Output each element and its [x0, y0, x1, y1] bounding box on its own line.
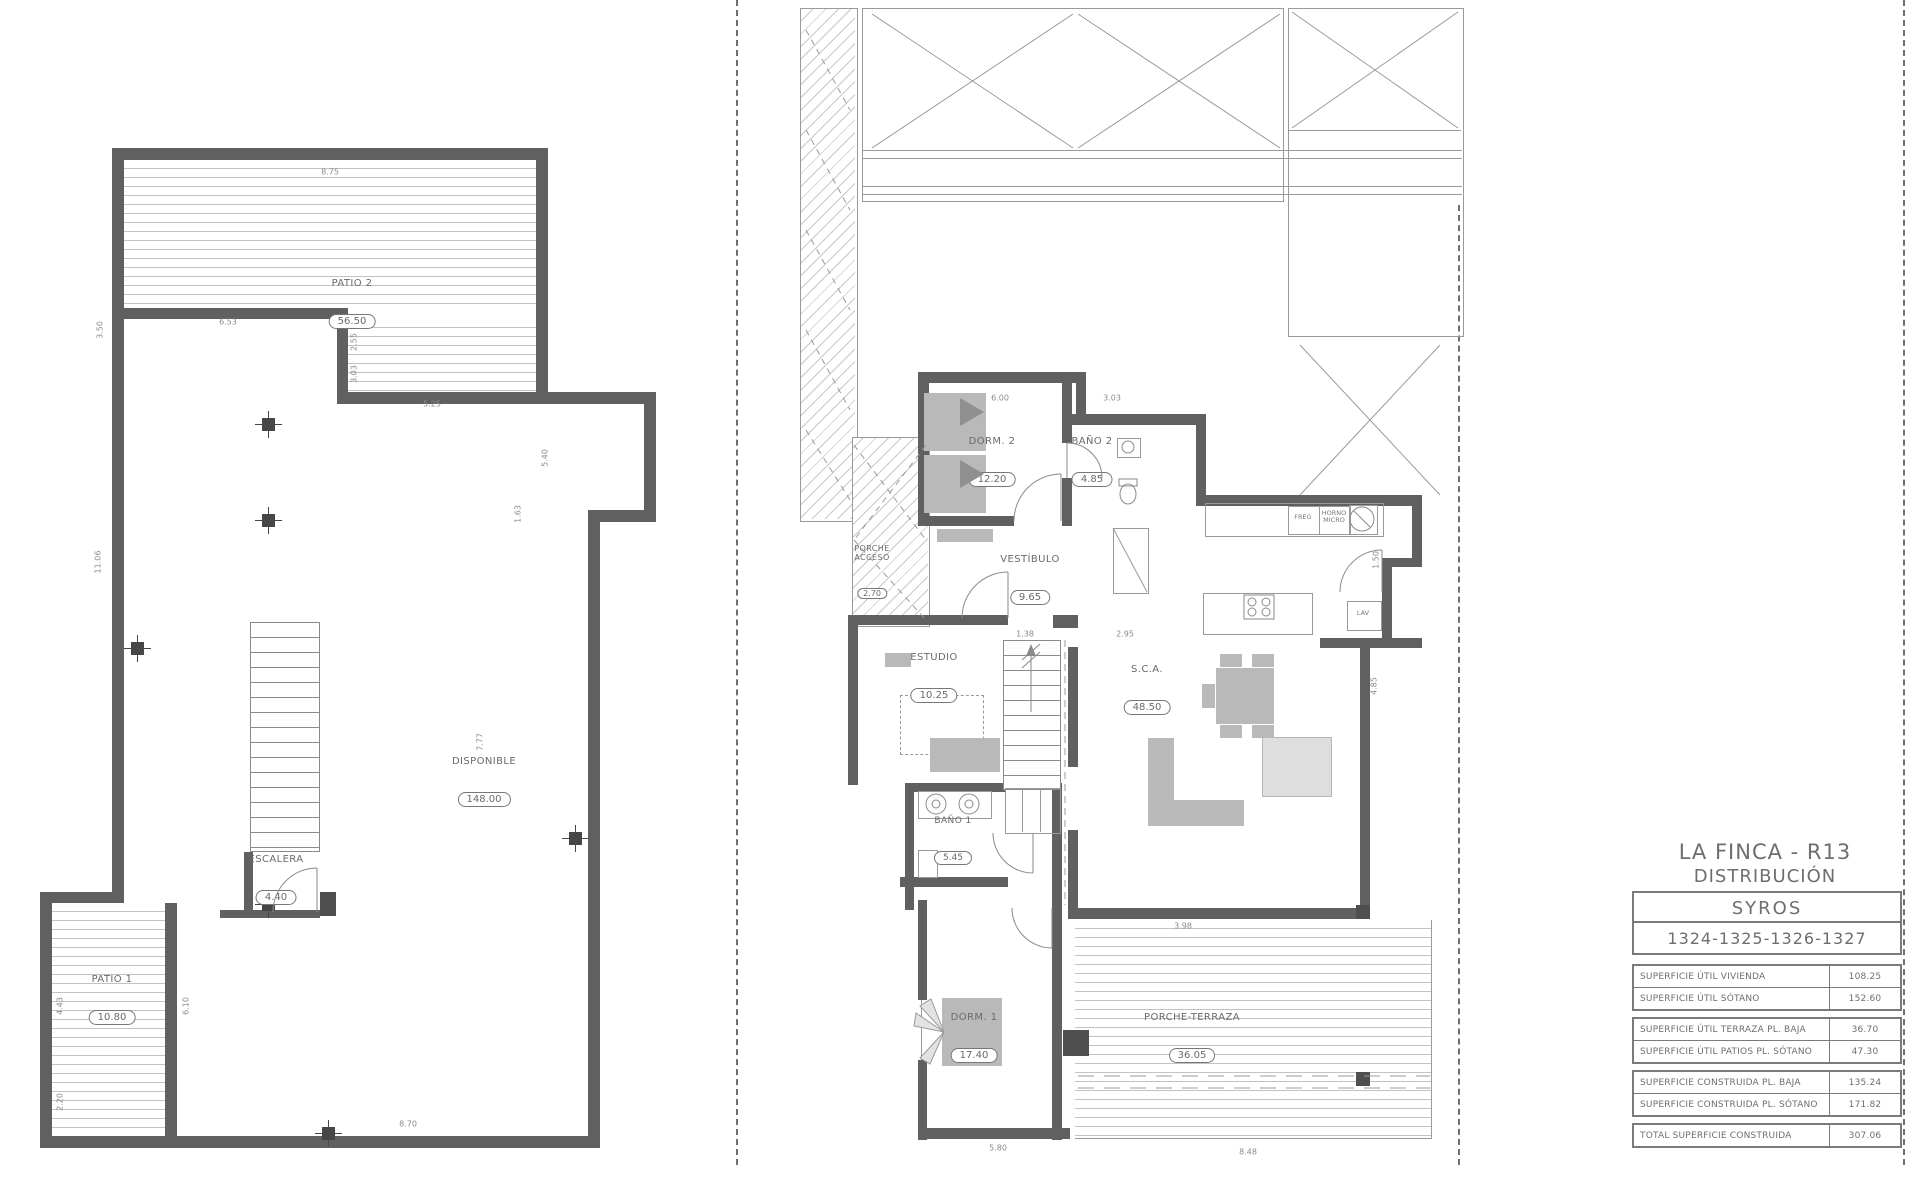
- wall: [165, 903, 177, 1136]
- dimension: 6.53: [219, 318, 237, 327]
- row-value: 171.82: [1829, 1094, 1900, 1115]
- row-label: SUPERFICIE ÚTIL VIVIENDA: [1634, 966, 1829, 987]
- areas-table-group-construida: SUPERFICIE CONSTRUIDA PL. BAJA 135.24 SU…: [1632, 1070, 1902, 1117]
- room-label-patio2: PATIO 2 56.50: [329, 278, 376, 329]
- wall: [1320, 638, 1422, 648]
- room-area-badge: 9.65: [1010, 590, 1050, 605]
- wall: [1072, 908, 1370, 919]
- room-name: S.C.A.: [1124, 664, 1171, 676]
- wall: [1382, 560, 1392, 647]
- roof-beam-line: [862, 158, 1462, 159]
- dimension: 8.75: [321, 168, 339, 177]
- column-marker: [569, 832, 582, 845]
- wall: [1068, 647, 1078, 767]
- table-row: SUPERFICIE ÚTIL VIVIENDA 108.25: [1634, 966, 1900, 987]
- areas-table-group-util: SUPERFICIE ÚTIL VIVIENDA 108.25 SUPERFIC…: [1632, 964, 1902, 1011]
- bath-sink-counter: [1117, 438, 1141, 458]
- sofa: [1148, 800, 1244, 826]
- plot-boundary-line-right: [1903, 0, 1905, 1165]
- room-label-escalera: ESCALERA 4.40: [249, 854, 304, 905]
- row-value: 307.06: [1829, 1125, 1900, 1146]
- dimension: 5.25: [423, 400, 441, 409]
- driveway-border: [800, 8, 858, 522]
- dimension: 6.00: [991, 394, 1009, 403]
- row-value: 47.30: [1829, 1041, 1900, 1062]
- wall: [600, 510, 656, 522]
- wall: [918, 372, 1086, 383]
- wall: [644, 392, 656, 522]
- door-arc-dorm1: [1012, 908, 1052, 948]
- room-name: DISPONIBLE: [452, 756, 516, 768]
- room-area-badge: 10.80: [89, 1010, 136, 1025]
- column-marker: [262, 418, 275, 431]
- row-value: 108.25: [1829, 966, 1900, 987]
- row-label: SUPERFICIE ÚTIL PATIOS PL. SÓTANO: [1634, 1041, 1829, 1062]
- dimension: 1.63: [514, 505, 523, 523]
- wall: [848, 615, 1008, 625]
- planter: [1063, 1030, 1089, 1056]
- room-label-patio1: PATIO 1 10.80: [89, 974, 136, 1025]
- roof-beam-line: [862, 186, 1462, 187]
- wall: [588, 510, 600, 1148]
- wall: [848, 615, 858, 785]
- wall: [900, 877, 1008, 887]
- kitchen-oven-label: HORNO MICRO: [1322, 510, 1347, 525]
- room-area-badge: 148.00: [457, 792, 510, 807]
- dimension: 8.70: [399, 1120, 417, 1129]
- terrace-column: [1356, 905, 1370, 919]
- room-name: BAÑO 2: [1072, 436, 1113, 448]
- room-label-terraza: PORCHE-TERRAZA 36.05: [1144, 1012, 1240, 1063]
- wall: [536, 392, 656, 404]
- wall: [1062, 383, 1072, 443]
- terrace-edge: [1075, 1138, 1432, 1139]
- door-arc-dorm2: [1014, 474, 1061, 521]
- closet-line: [1040, 789, 1041, 832]
- patio-diagonal: [1300, 345, 1440, 495]
- room-name: DORM. 2: [969, 436, 1016, 448]
- wall: [40, 892, 124, 903]
- table-row: SUPERFICIE CONSTRUIDA PL. SÓTANO 171.82: [1634, 1093, 1900, 1115]
- wall: [918, 516, 1014, 526]
- dimension: 4.43: [56, 997, 65, 1015]
- room-area-badge: 10.25: [911, 688, 958, 703]
- desk: [885, 653, 911, 667]
- garage-line: [1289, 130, 1461, 131]
- wall: [1360, 647, 1370, 919]
- room-label-bano2: BAÑO 2 4.85: [1072, 436, 1113, 487]
- dimension: 2.55: [350, 333, 359, 351]
- wall: [1052, 905, 1062, 1140]
- plot-boundary-line-right-inner: [1458, 205, 1460, 1165]
- floor-plan-sheet: PATIO 2 56.50 DISPONIBLE 148.00 ESCALERA…: [0, 0, 1920, 1200]
- room-name: PATIO 1: [89, 974, 136, 986]
- room-label-disponible: DISPONIBLE 148.00: [452, 756, 516, 807]
- room-name: PORCHE-TERRAZA: [1144, 1012, 1240, 1024]
- door-arc-bano1: [993, 833, 1033, 873]
- dimension: 8.48: [1239, 1148, 1257, 1157]
- toilet-bowl: [1120, 484, 1136, 504]
- carport-outline: [862, 8, 1284, 202]
- wall: [905, 783, 914, 910]
- wardrobe-cabinet: [1113, 528, 1149, 594]
- room-area-badge: 56.50: [329, 314, 376, 329]
- plot-boundary-line-center: [736, 0, 738, 1165]
- roof-beam-line: [862, 194, 1462, 195]
- areas-table-group-exterior: SUPERFICIE ÚTIL TERRAZA PL. BAJA 36.70 S…: [1632, 1017, 1902, 1064]
- stair-pillar: [320, 892, 336, 916]
- wall: [337, 392, 548, 404]
- chair: [1220, 725, 1242, 738]
- row-label: TOTAL SUPERFICIE CONSTRUIDA: [1634, 1125, 1829, 1146]
- room-area-badge: 4.85: [1072, 472, 1112, 487]
- sheet-title: DISTRIBUCIÓN: [1630, 866, 1900, 887]
- row-value: 152.60: [1829, 988, 1900, 1009]
- dimension: 5.40: [541, 449, 550, 467]
- room-label-porche-acceso: PORCHE ACCESO 2.70: [854, 544, 889, 600]
- row-value: 135.24: [1829, 1072, 1900, 1093]
- room-name: VESTÍBULO: [1000, 554, 1059, 566]
- garage-outline: [1288, 8, 1464, 337]
- room-area-badge: 17.40: [951, 1048, 998, 1063]
- chair: [1252, 654, 1274, 667]
- row-value: 36.70: [1829, 1019, 1900, 1040]
- wall: [112, 148, 124, 892]
- basement-stairs: [250, 622, 320, 852]
- bath-counter: [918, 791, 992, 819]
- room-name: DORM. 1: [951, 1012, 998, 1024]
- areas-table-group-total: TOTAL SUPERFICIE CONSTRUIDA 307.06: [1632, 1123, 1902, 1148]
- table-row: SUPERFICIE ÚTIL TERRAZA PL. BAJA 36.70: [1634, 1019, 1900, 1040]
- ground-stairs: [1003, 640, 1061, 790]
- room-label-dorm2: DORM. 2 12.20: [969, 436, 1016, 487]
- wall: [918, 1128, 1070, 1139]
- dimension: 7.77: [476, 733, 485, 751]
- patio2-hatch-lower: [348, 319, 536, 392]
- row-label: SUPERFICIE ÚTIL TERRAZA PL. BAJA: [1634, 1019, 1829, 1040]
- project-title: LA FINCA - R13: [1630, 840, 1900, 864]
- wall: [40, 1136, 600, 1148]
- room-name: BAÑO 1: [934, 816, 972, 826]
- unit-numbers-box: 1324-1325-1326-1327: [1632, 921, 1902, 955]
- model-name-box: SYROS: [1632, 891, 1902, 925]
- table-row: SUPERFICIE CONSTRUIDA PL. BAJA 135.24: [1634, 1072, 1900, 1093]
- dimension: 1.50: [1372, 551, 1381, 569]
- wall: [1196, 414, 1206, 506]
- room-area-badge: 2.70: [857, 588, 887, 599]
- row-label: SUPERFICIE CONSTRUIDA PL. SÓTANO: [1634, 1094, 1829, 1115]
- wall: [1062, 478, 1072, 526]
- roof-beam-line: [862, 150, 1462, 151]
- room-label-dorm1: DORM. 1 17.40: [951, 1012, 998, 1063]
- wall: [1068, 830, 1078, 919]
- wall: [918, 900, 927, 1000]
- table-row: SUPERFICIE ÚTIL SÓTANO 152.60: [1634, 987, 1900, 1009]
- table-row: SUPERFICIE ÚTIL PATIOS PL. SÓTANO 47.30: [1634, 1040, 1900, 1062]
- room-area-badge: 48.50: [1124, 700, 1171, 715]
- wall: [1053, 615, 1078, 628]
- chair: [1220, 654, 1242, 667]
- wall: [220, 910, 320, 918]
- terrace-edge: [1431, 920, 1432, 1138]
- dimension: 11.06: [94, 551, 103, 574]
- chair: [1252, 725, 1274, 738]
- laundry-label: LAV: [1357, 610, 1369, 617]
- row-label: SUPERFICIE ÚTIL SÓTANO: [1634, 988, 1829, 1009]
- room-area-badge: 12.20: [969, 472, 1016, 487]
- dimension: 4.85: [1370, 677, 1379, 695]
- wall: [112, 148, 548, 160]
- pillow: [914, 1013, 944, 1032]
- pillow: [920, 999, 944, 1032]
- room-label-bano1: BAÑO 1 5.45: [934, 816, 972, 865]
- wall: [1072, 414, 1206, 425]
- dining-table: [1216, 668, 1274, 724]
- dimension: 1.38: [1016, 630, 1034, 639]
- room-name: ESTUDIO: [910, 652, 957, 664]
- dimension: 3.50: [96, 321, 105, 339]
- sofa: [930, 738, 1000, 772]
- dimension: 3.03: [1103, 394, 1121, 403]
- room-name: PATIO 2: [329, 278, 376, 290]
- dimension: 3.03: [350, 365, 359, 383]
- table-row: TOTAL SUPERFICIE CONSTRUIDA 307.06: [1634, 1125, 1900, 1146]
- window-line: [921, 1000, 922, 1060]
- room-area-badge: 4.40: [256, 890, 296, 905]
- room-area-badge: 5.45: [934, 851, 972, 865]
- kitchen-washer-unit: [1349, 505, 1378, 535]
- dimension: 3.98: [1174, 922, 1192, 931]
- wall: [1412, 495, 1422, 567]
- room-name: PORCHE ACCESO: [854, 544, 889, 562]
- dimension: 6.10: [182, 997, 191, 1015]
- column-marker: [322, 1127, 335, 1140]
- sideboard: [937, 529, 993, 542]
- terrace-column: [1356, 1072, 1370, 1086]
- dimension: 2.95: [1116, 630, 1134, 639]
- room-label-sca: S.C.A. 48.50: [1124, 664, 1171, 715]
- column-marker: [262, 514, 275, 527]
- room-label-vestibulo: VESTÍBULO 9.65: [1000, 554, 1059, 605]
- closet-line: [1022, 789, 1023, 832]
- dimension: 5.80: [989, 1144, 1007, 1153]
- kitchen-island: [1203, 593, 1313, 635]
- kitchen-sink-label: FREG: [1294, 514, 1311, 521]
- room-label-estudio: ESTUDIO 10.25: [910, 652, 957, 703]
- toilet-tank: [1119, 479, 1137, 486]
- room-name: ESCALERA: [249, 854, 304, 866]
- row-label: SUPERFICIE CONSTRUIDA PL. BAJA: [1634, 1072, 1829, 1093]
- patio-diagonal: [1300, 345, 1440, 495]
- chair: [1202, 684, 1215, 708]
- room-area-badge: 36.05: [1169, 1048, 1216, 1063]
- rug: [1262, 737, 1332, 797]
- wall: [40, 892, 52, 1148]
- terrace-hatch: [1075, 920, 1432, 1138]
- column-marker: [131, 642, 144, 655]
- wall: [536, 148, 548, 404]
- dimension: 2.20: [56, 1093, 65, 1111]
- understair-closet: [1005, 788, 1061, 834]
